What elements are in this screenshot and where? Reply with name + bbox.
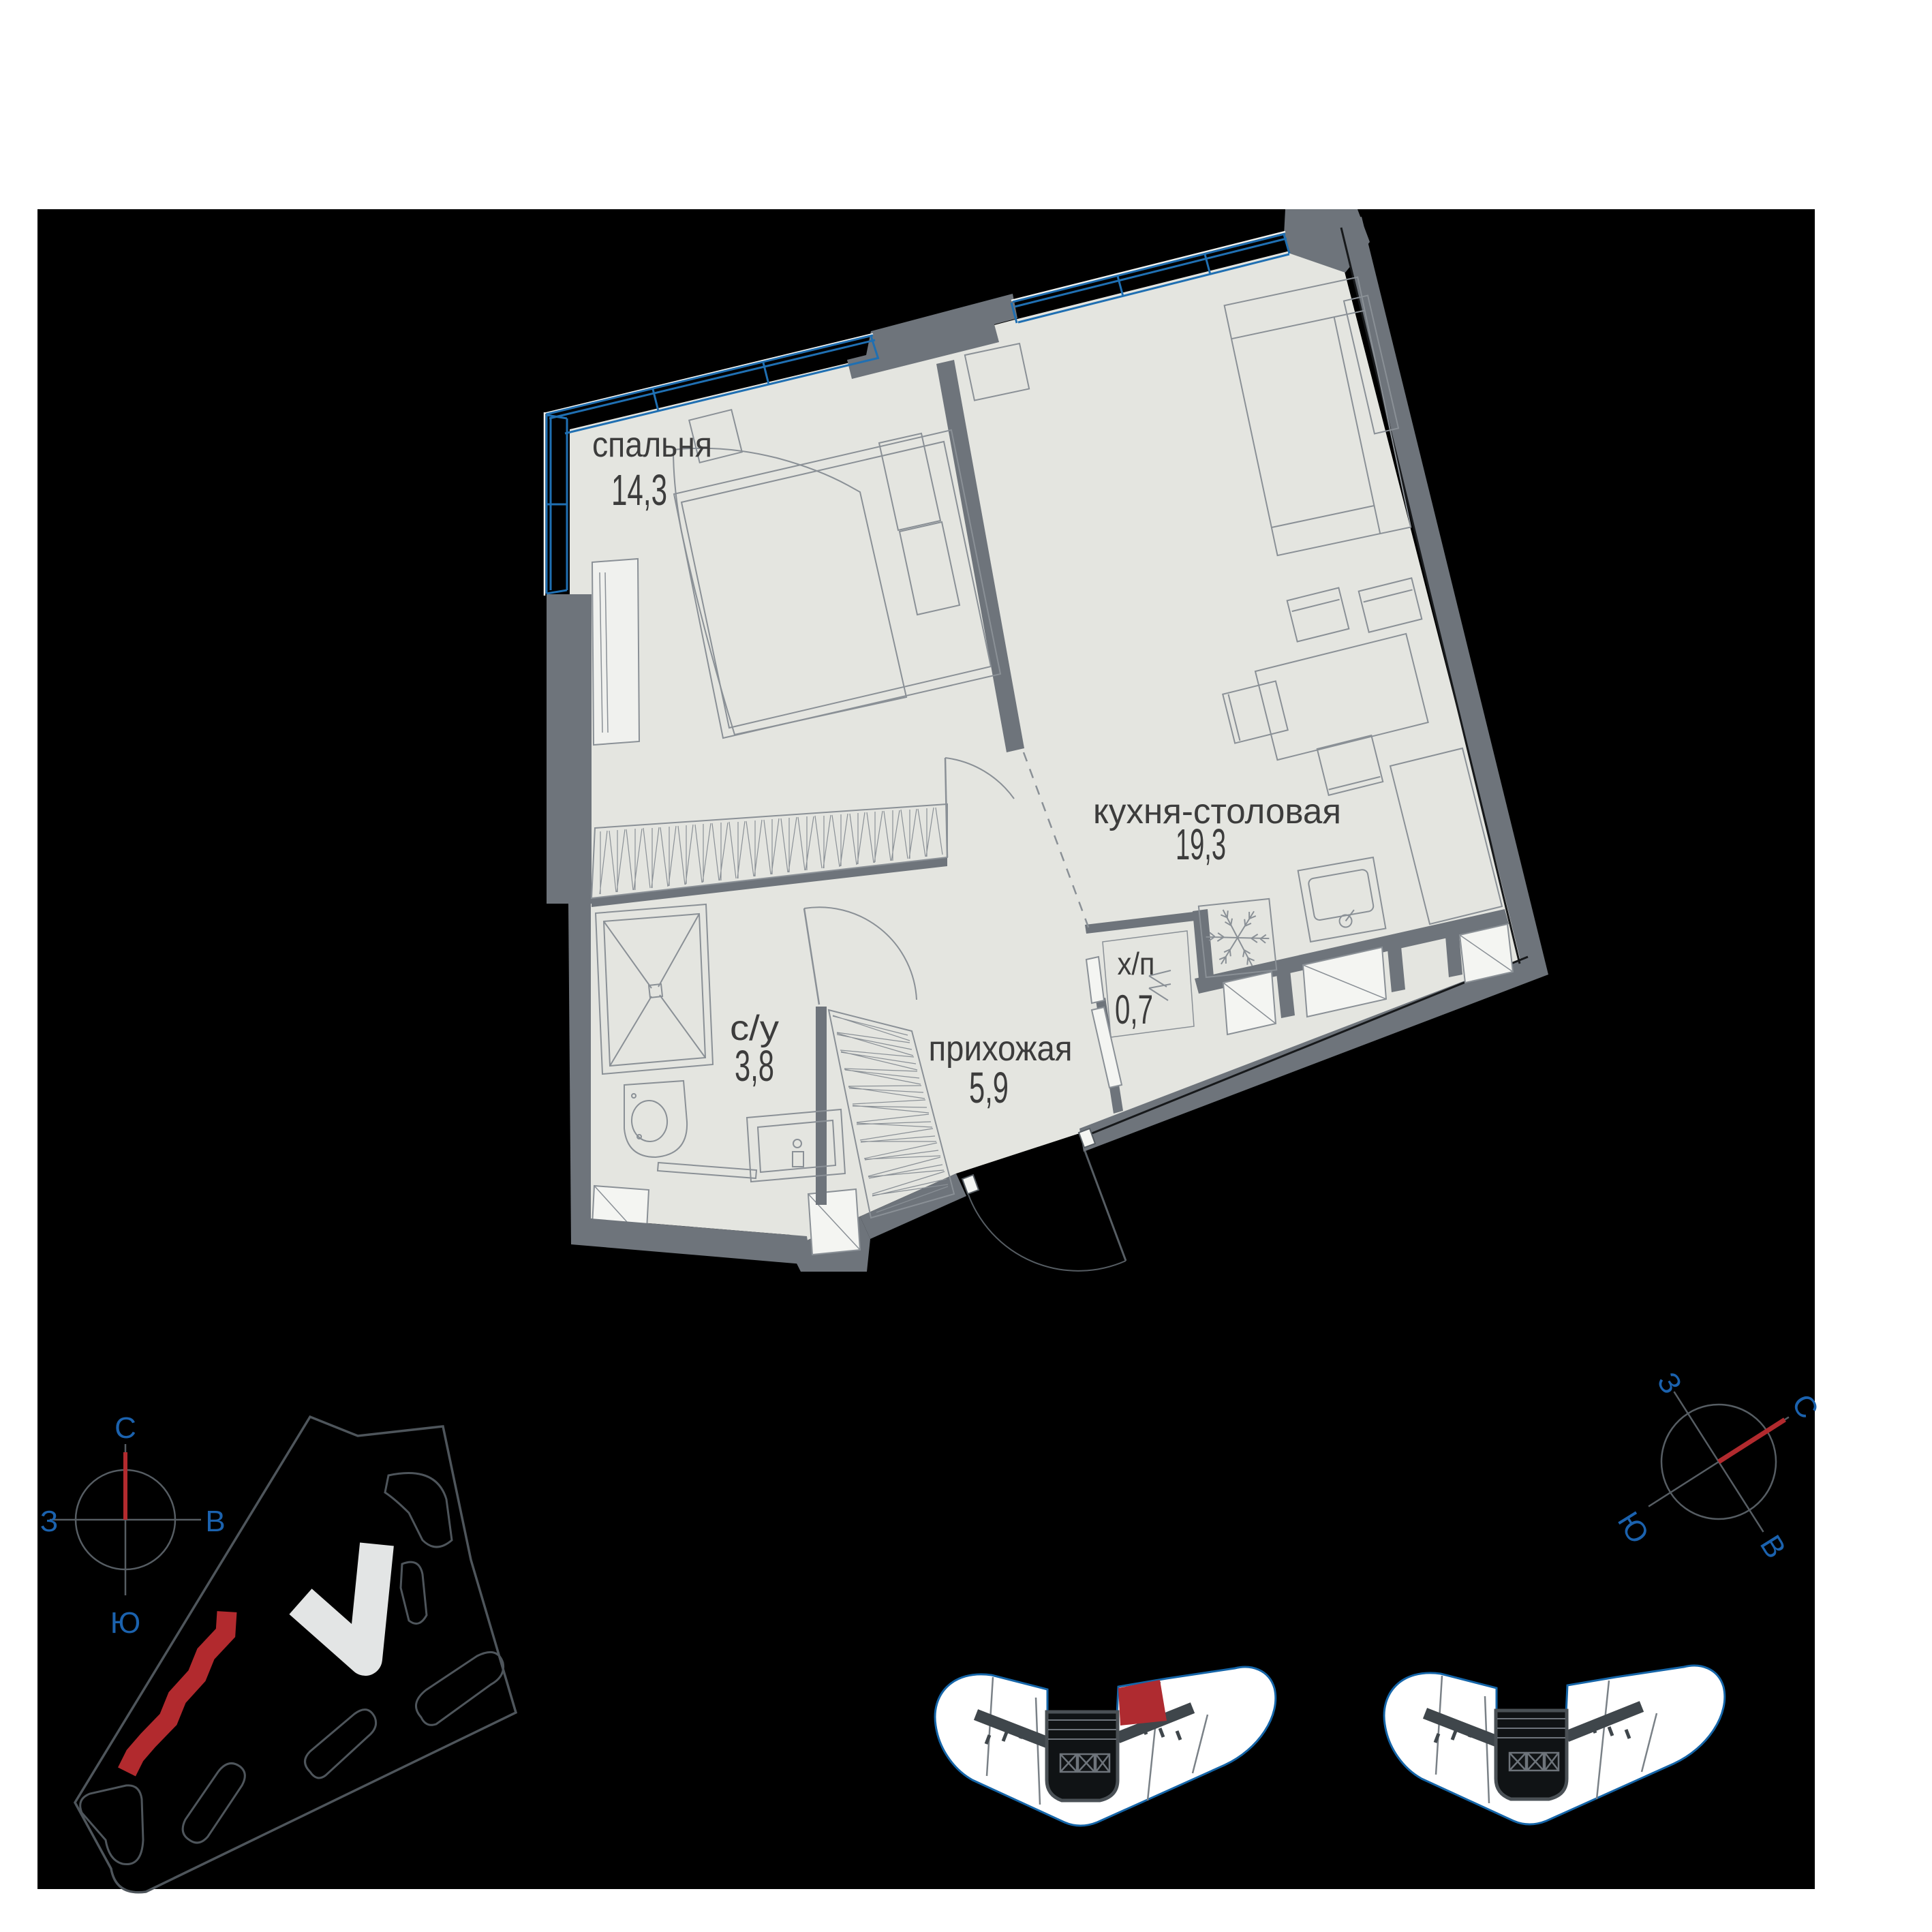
svg-text:З: З	[40, 1505, 59, 1538]
svg-text:0,7: 0,7	[1115, 987, 1153, 1032]
svg-text:3,8: 3,8	[735, 1041, 774, 1090]
svg-text:Ю: Ю	[110, 1606, 140, 1640]
svg-text:С: С	[114, 1411, 136, 1445]
svg-text:5,9: 5,9	[969, 1063, 1009, 1112]
svg-text:спальня: спальня	[592, 425, 712, 465]
svg-text:В: В	[205, 1505, 225, 1538]
svg-text:14,3: 14,3	[611, 465, 667, 515]
svg-text:19,3: 19,3	[1176, 820, 1226, 869]
svg-text:х/п: х/п	[1118, 946, 1155, 981]
